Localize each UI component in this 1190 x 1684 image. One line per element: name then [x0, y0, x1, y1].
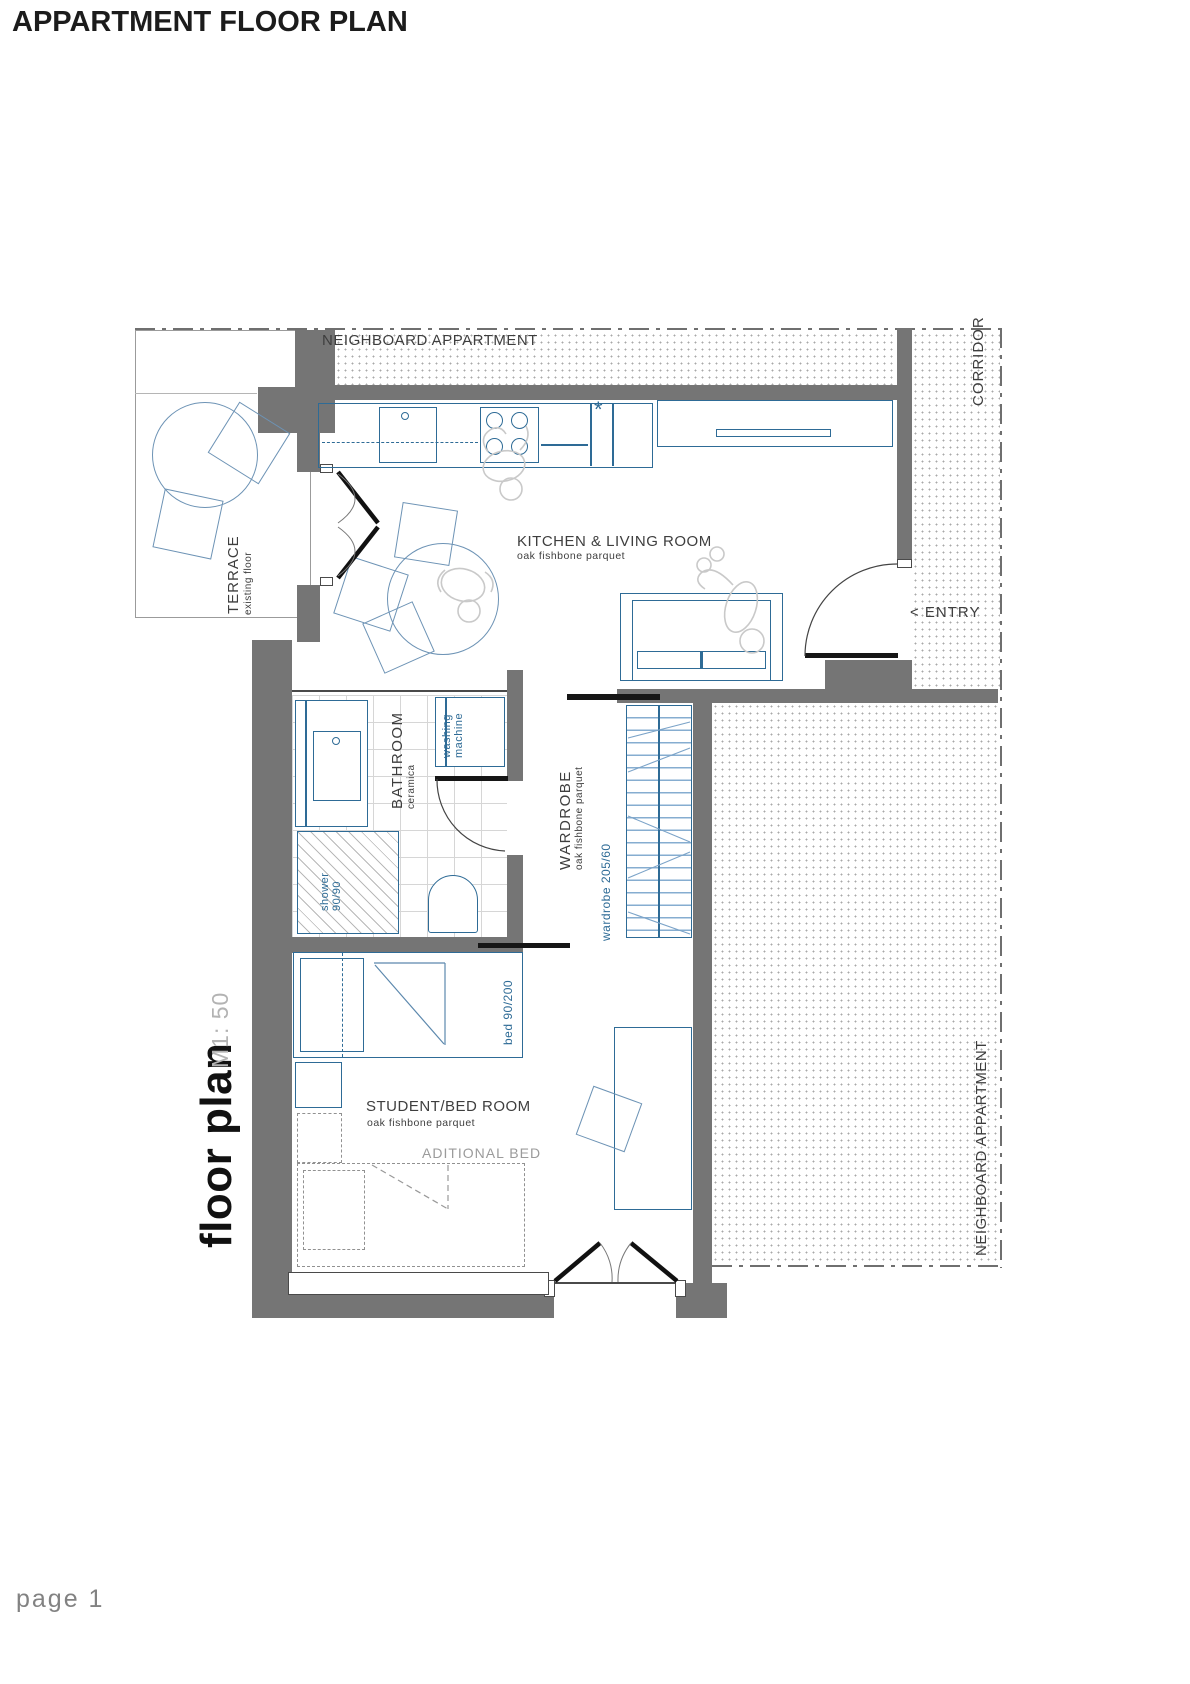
vanity-edge-line	[305, 701, 307, 826]
shower-label-line1: shower	[320, 873, 332, 911]
washing-machine-label: washing machine	[442, 713, 465, 758]
counter-centerline	[322, 442, 478, 443]
sideboard	[657, 400, 893, 447]
boundary-line-bottom	[712, 1265, 1002, 1267]
kitchen-living-label: KITCHEN & LIVING ROOM	[517, 534, 712, 550]
shower	[297, 831, 399, 934]
wardrobe-floor-label: oak fishbone parquet	[575, 767, 586, 870]
door-jamb	[897, 559, 912, 568]
additional-bed-label: ADITIONAL BED	[422, 1146, 541, 1161]
burner-icon	[511, 412, 528, 429]
drawing-title: floor plan	[194, 1043, 240, 1248]
burner-icon	[486, 412, 503, 429]
wardrobe-dim-label: wardrobe 205/60	[600, 843, 613, 941]
lintel-wardrobe-opening	[567, 694, 660, 700]
kitchen-living-floor-label: oak fishbone parquet	[517, 551, 625, 562]
bedroom-folding-door	[555, 1243, 677, 1281]
bathroom-partition-line	[292, 690, 509, 692]
burner-icon	[511, 438, 528, 455]
nightstand	[295, 1062, 342, 1108]
bathroom-floor-label: ceramica	[407, 764, 418, 809]
additional-bed-ghost	[297, 1113, 342, 1163]
neighbor-apartment-right-area	[712, 703, 1000, 1265]
terrace-floor-line	[135, 393, 257, 394]
sofa-cushion-divider	[700, 652, 703, 669]
corridor-label: CORRIDOR	[971, 316, 987, 406]
bedroom-door-arcs	[600, 1243, 631, 1282]
entry-door-leaf	[805, 653, 898, 658]
drawing-scale: M1: 50	[208, 992, 232, 1068]
wardrobe-label: WARDROBE	[558, 770, 574, 870]
sink-faucet-icon	[401, 412, 409, 420]
entry-label: < ENTRY	[910, 605, 981, 621]
bed-centerline	[342, 953, 343, 1057]
shower-label: shower 90/90	[320, 873, 343, 911]
neighbor-right-label: NEIGHBOARD APPARTMENT	[974, 1040, 990, 1256]
bathroom-label: BATHROOM	[390, 711, 406, 809]
wardrobe-centerline	[658, 705, 660, 938]
bedroom-label: STUDENT/BED ROOM	[366, 1099, 531, 1115]
wall-bathroom	[507, 670, 523, 781]
terrace-label: TERRACE	[226, 535, 242, 614]
freezer-symbol-icon: *	[594, 398, 603, 421]
wall-left	[252, 640, 292, 1318]
bed-dim-label: bed 90/200	[502, 980, 515, 1045]
linework-overlay	[0, 0, 1190, 1684]
wall	[297, 585, 320, 642]
boundary-line-right	[1000, 328, 1002, 1268]
door-sill-line	[554, 1282, 676, 1284]
chair	[394, 502, 458, 566]
sheet-title: APPARTMENT FLOOR PLAN	[12, 6, 408, 39]
sideboard-shelf	[716, 429, 831, 437]
bedroom-floor-label: oak fishbone parquet	[367, 1118, 475, 1129]
bathroom-door-leaf	[435, 776, 508, 781]
wall-top	[295, 385, 912, 400]
entry-door-swing	[805, 564, 897, 656]
terrace-floor-label: existing floor	[244, 552, 255, 615]
neighbor-top-label: NEIGHBOARD APPARTMENT	[322, 333, 538, 349]
basin-faucet-icon	[332, 737, 340, 745]
washing-machine-label-line1: washing	[442, 713, 454, 758]
lintel-bedroom-opening	[478, 943, 570, 948]
bed-pillow	[300, 958, 364, 1052]
wall	[297, 433, 320, 472]
washing-machine-label-line2: machine	[454, 713, 466, 758]
wall-middle	[617, 689, 998, 703]
shower-label-line2: 90/90	[332, 873, 344, 911]
door-jamb	[675, 1280, 686, 1297]
fridge-divider	[612, 404, 614, 466]
floor-plan-sheet: APPARTMENT FLOOR PLAN page 1 floor plan …	[0, 0, 1190, 1684]
exterior-ledge	[288, 1272, 549, 1295]
toilet	[428, 875, 478, 933]
terrace-chair	[152, 488, 223, 559]
door-jamb	[320, 577, 333, 586]
additional-bed-pillow	[303, 1170, 365, 1250]
wall-corridor	[897, 328, 912, 567]
burner-icon	[486, 438, 503, 455]
page-number: page 1	[16, 1586, 104, 1612]
counter-line	[541, 444, 588, 446]
fridge-divider	[590, 404, 592, 466]
wall-right	[693, 703, 712, 1285]
